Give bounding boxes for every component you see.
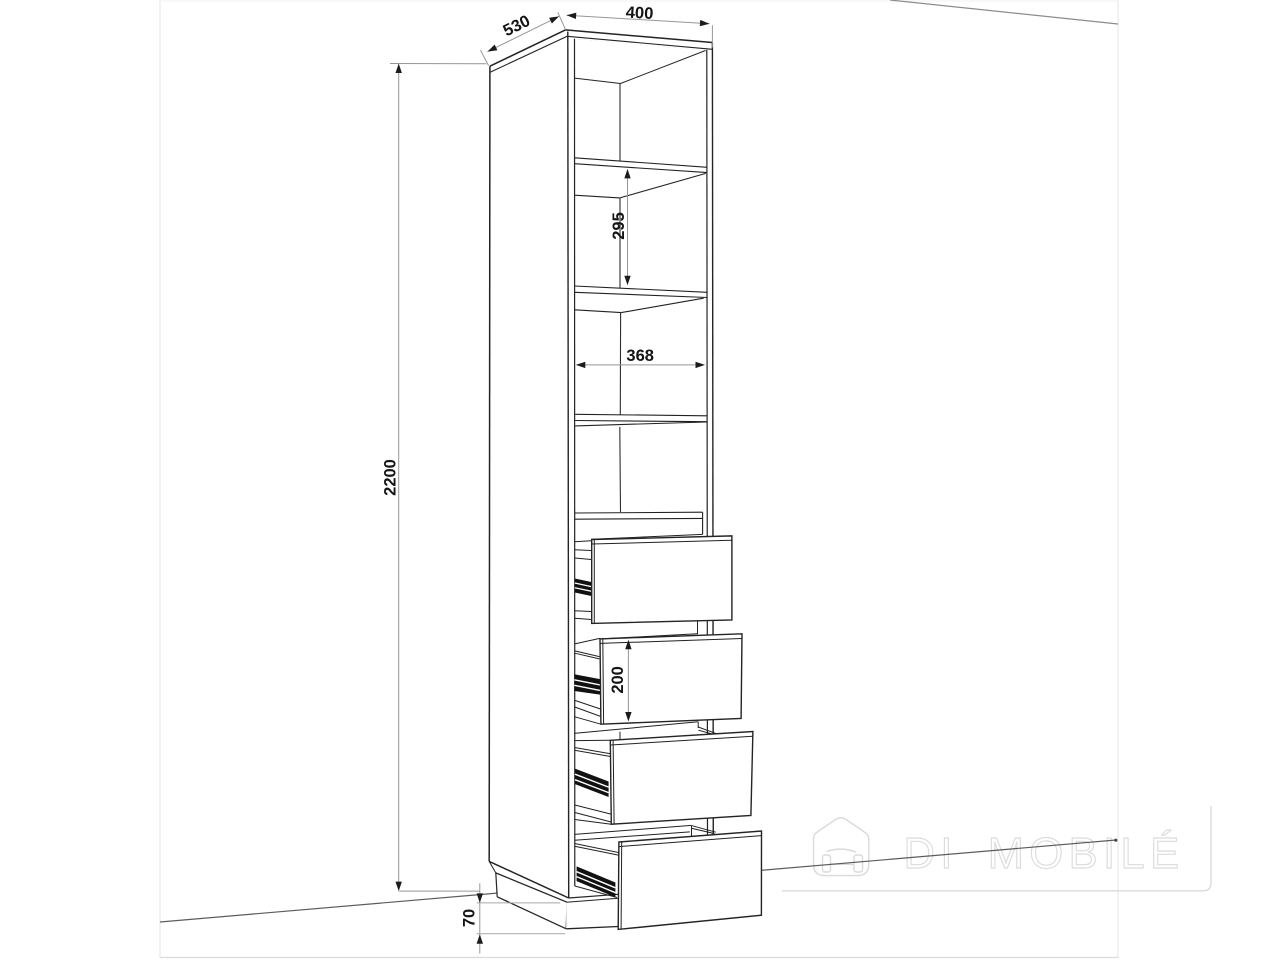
svg-text:295: 295 xyxy=(610,212,628,240)
svg-text:2200: 2200 xyxy=(381,459,399,496)
svg-text:70: 70 xyxy=(460,909,478,927)
svg-text:200: 200 xyxy=(609,666,627,694)
svg-text:DI MOBILÉ: DI MOBILÉ xyxy=(904,829,1185,878)
svg-text:400: 400 xyxy=(625,3,654,23)
svg-text:368: 368 xyxy=(626,347,654,365)
